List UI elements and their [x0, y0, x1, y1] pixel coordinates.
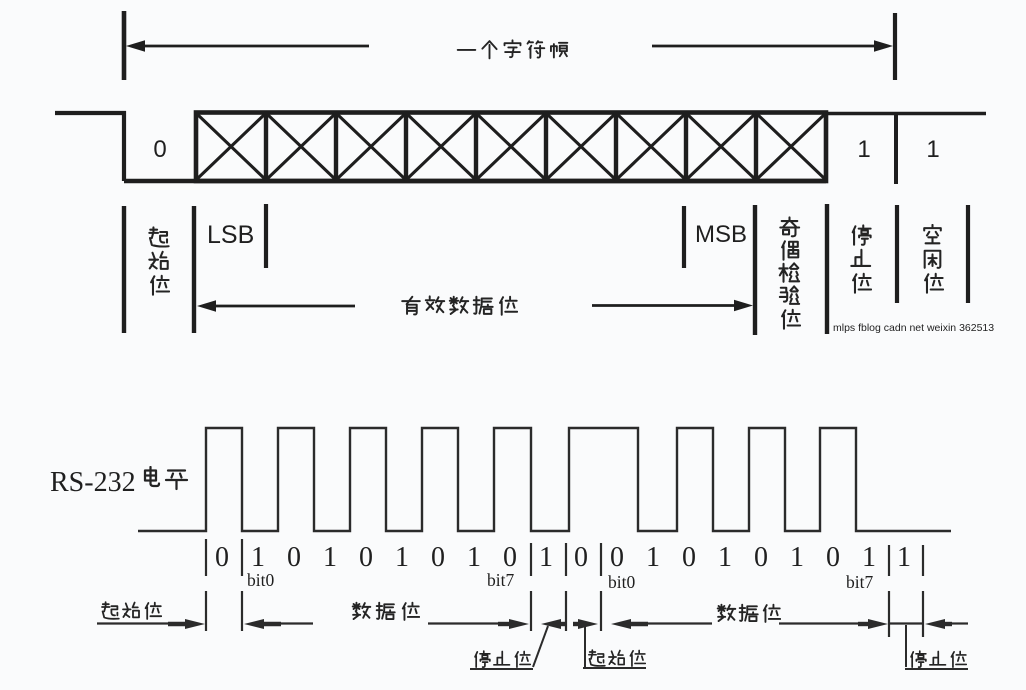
- svg-text:RS-232: RS-232: [50, 467, 136, 498]
- svg-text:1: 1: [926, 136, 939, 163]
- svg-text:LSB: LSB: [207, 221, 254, 249]
- svg-text:bit7: bit7: [846, 572, 873, 592]
- svg-text:mlps fblog cadn net weixin 362: mlps fblog cadn net weixin 362513: [833, 322, 994, 334]
- svg-text:0: 0: [153, 136, 166, 163]
- svg-text:bit0: bit0: [247, 570, 274, 590]
- svg-text:MSB: MSB: [695, 221, 747, 248]
- svg-text:bit7: bit7: [487, 570, 514, 590]
- svg-text:bit0: bit0: [608, 572, 635, 592]
- svg-text:1: 1: [857, 136, 870, 163]
